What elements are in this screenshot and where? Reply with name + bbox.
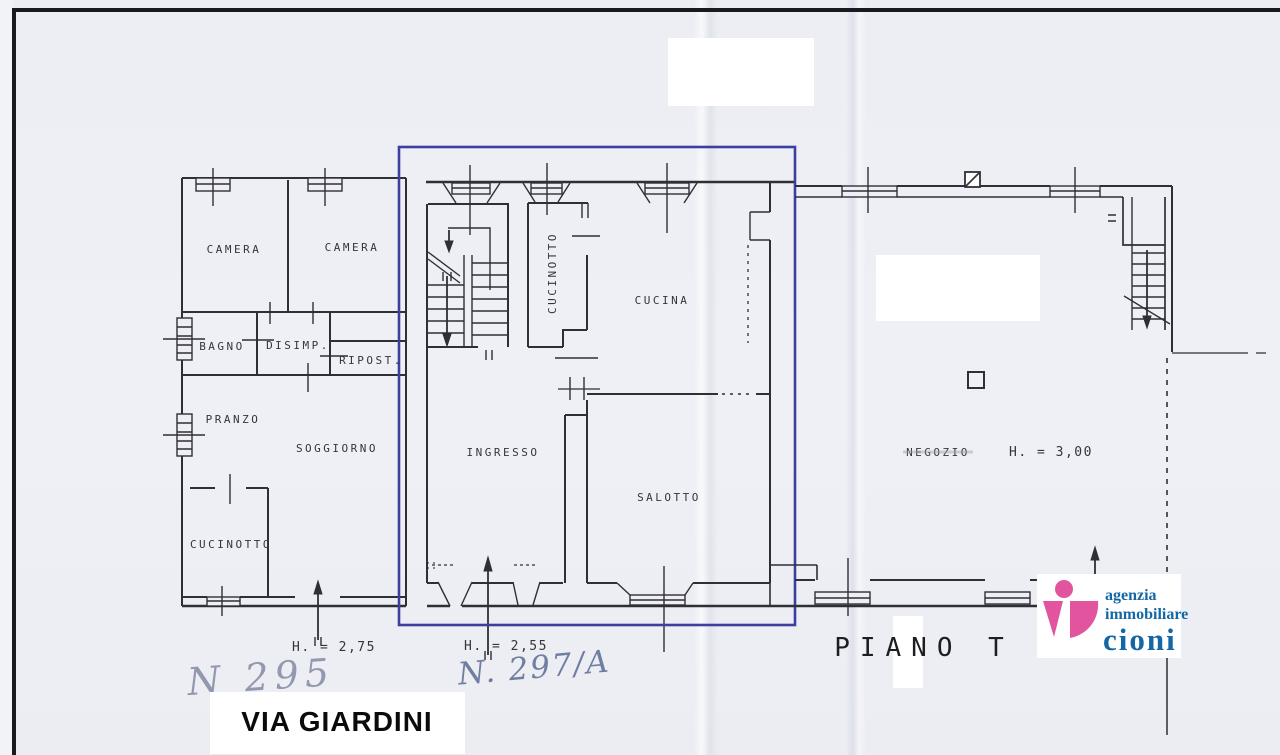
room-label-bagno: BAGNO — [199, 340, 245, 353]
room-label-disimp: DISIMP. — [266, 339, 330, 352]
room-label-salotto: SALOTTO — [637, 491, 701, 504]
room-label-ripost: RIPOST. — [339, 354, 403, 367]
room-label-pranzo: PRANZO — [206, 413, 261, 426]
scanned-floorplan-page: CAMERA CAMERA BAGNO DISIMP. RIPOST. PRAN… — [0, 0, 1280, 755]
street-label: VIA GIARDINI — [241, 706, 432, 737]
stair-arrow-down-right — [1143, 250, 1151, 328]
staircase-middle — [428, 228, 508, 360]
room-label-soggiorno: SOGGIORNO — [296, 442, 378, 455]
floor-plan-svg: CAMERA CAMERA BAGNO DISIMP. RIPOST. PRAN… — [0, 0, 1280, 755]
street-label-group: VIA GIARDINI — [210, 692, 465, 754]
height-label-negozio: H. = 3,00 — [1009, 445, 1093, 460]
middle-unit-walls — [426, 182, 795, 606]
chimney-symbols — [443, 163, 697, 235]
stair-arrow-down-1 — [445, 230, 453, 252]
room-label-ingresso: INGRESSO — [467, 446, 540, 459]
right-unit-openings — [815, 167, 1100, 616]
floor-label: PIANO T — [834, 633, 1014, 663]
staircase-right — [1108, 197, 1170, 330]
redaction-box — [668, 38, 814, 106]
right-unit-walls — [770, 186, 1266, 606]
room-label-camera2: CAMERA — [325, 241, 380, 254]
logo-text-line1: agenzia — [1105, 587, 1157, 604]
room-label-cucina: CUCINA — [635, 294, 690, 307]
redaction-boxes — [668, 38, 1040, 688]
entrance-arrow-left — [314, 581, 322, 646]
pillar-square-icon — [968, 372, 984, 388]
room-label-camera1: CAMERA — [207, 243, 262, 256]
room-label-cucinotto-middle: CUCINOTTO — [546, 232, 559, 314]
logo-text-line3: cioni — [1103, 622, 1177, 657]
agency-logo: agenzia immobiliare cioni — [1037, 574, 1188, 658]
room-label-cucinotto-left: CUCINOTTO — [190, 538, 272, 551]
logo-text-line2: immobiliare — [1105, 606, 1188, 623]
redaction-box — [876, 255, 1040, 321]
highlight-box — [399, 147, 795, 625]
